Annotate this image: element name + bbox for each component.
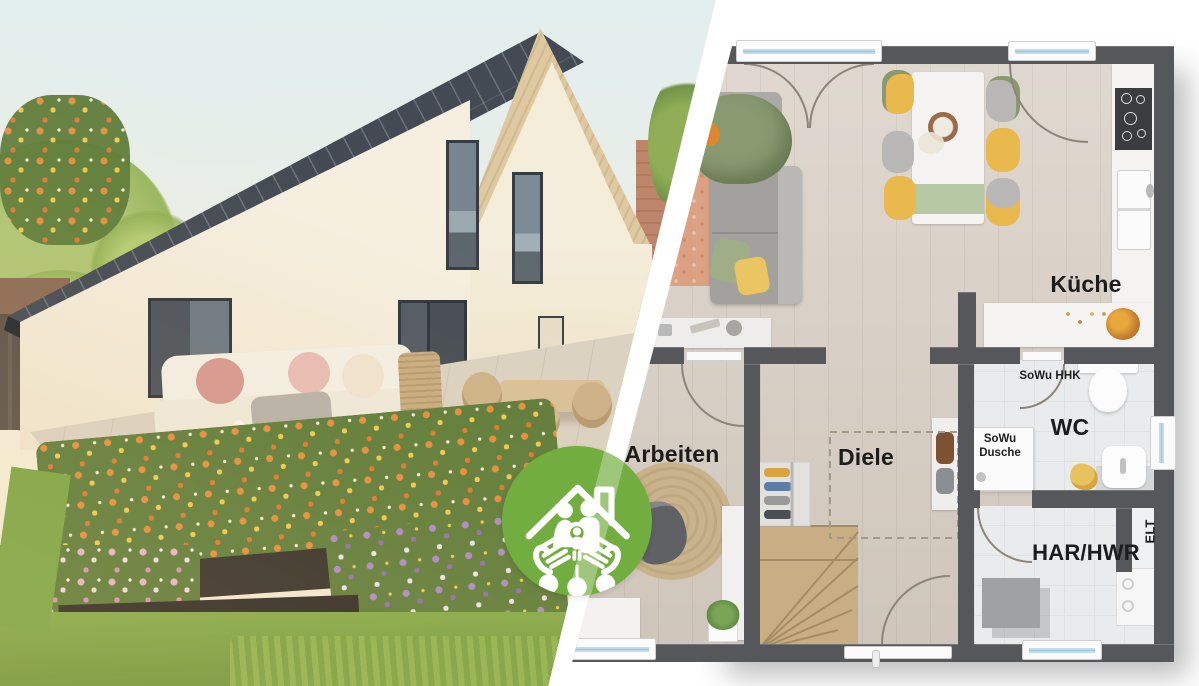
wall-wc-north-right — [1064, 347, 1154, 364]
terrace-window-glass — [743, 49, 875, 54]
wall-diele-east — [958, 364, 974, 662]
room-label-har-hwr: HAR/HWR — [1024, 540, 1148, 566]
room-label-diele: Diele — [826, 444, 906, 471]
sowu-dusche-line1: SoWu — [966, 432, 1034, 446]
wall-wc-har-left — [974, 490, 980, 508]
wall-wc-har — [1032, 490, 1154, 508]
room-label-elt: ELT — [1143, 510, 1158, 554]
front-door — [844, 646, 952, 659]
wc-window-glass — [1159, 423, 1164, 463]
door-leaf — [686, 351, 742, 361]
wall-living-south-mid — [744, 347, 826, 364]
door-leaf — [1022, 351, 1062, 361]
composite-image: Küche Arbeiten Diele WC HAR/HWR SoWu HHK… — [0, 0, 1199, 686]
window — [446, 140, 479, 270]
window — [512, 172, 543, 284]
room-label-sowu-hhk: SoWu HHK — [1010, 370, 1090, 382]
room-label-sowu-dusche: SoWu Dusche — [966, 432, 1034, 460]
kitchen-window-glass — [1015, 49, 1089, 54]
pillow-pink — [196, 358, 244, 404]
outdoor-chair — [572, 382, 612, 428]
pillow-pink — [288, 352, 330, 394]
wall-arbeiten-east — [744, 364, 760, 662]
arbeiten-window-glass — [555, 647, 649, 652]
wall-wc-north-left — [976, 347, 1020, 364]
front-door-handle — [872, 650, 880, 668]
sowu-dusche-line2: Dusche — [966, 446, 1034, 460]
pillow-beige — [342, 354, 384, 398]
family-home-logo — [502, 446, 652, 596]
har-window-glass — [1029, 648, 1095, 653]
room-label-wc: WC — [1048, 414, 1092, 441]
flower-bush — [0, 95, 130, 245]
room-label-kueche: Küche — [1040, 271, 1132, 298]
wall-stub-kitchen — [958, 292, 976, 364]
lawn-patch — [230, 636, 570, 686]
wall-right — [1154, 46, 1174, 662]
